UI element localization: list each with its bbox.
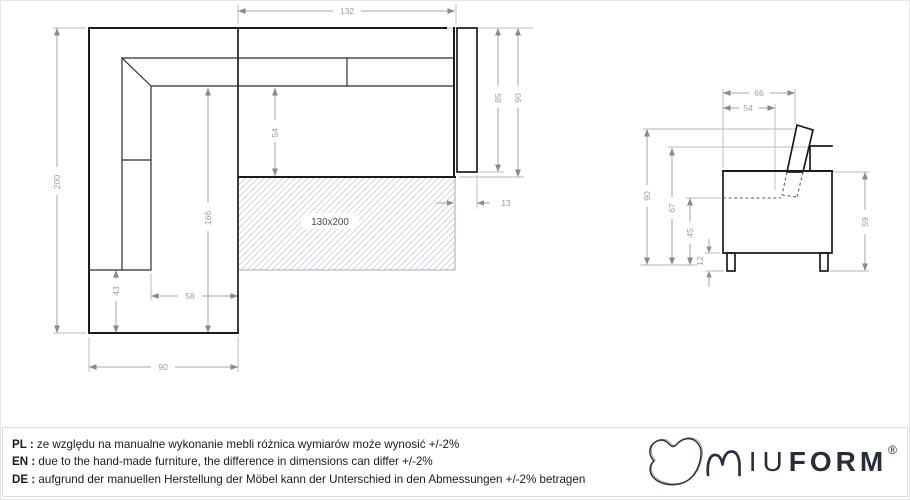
- disclaimer-pl: PL : ze względu na manualne wykonanie me…: [12, 436, 585, 454]
- footer: PL : ze względu na manualne wykonanie me…: [2, 427, 908, 497]
- dim-label-90-bottom: 90: [158, 362, 168, 372]
- dim-label-200: 200: [52, 175, 62, 190]
- sofa-leg-left: [727, 253, 735, 271]
- dim-label-166: 166: [203, 211, 213, 226]
- disclaimer-en-text: due to the hand-made furniture, the diff…: [38, 455, 432, 468]
- registered-mark: ®: [888, 443, 897, 457]
- dim-label-132: 132: [340, 6, 355, 16]
- sofa-leg-right: [820, 253, 828, 271]
- dim-label-54-top: 54: [270, 128, 280, 138]
- bean-icon-sketch-line: [651, 438, 702, 484]
- disclaimer-de-text: aufgrund der manuellen Herstellung der M…: [38, 473, 585, 486]
- dim-label-59: 59: [860, 217, 870, 227]
- brand-logo-mark: [646, 436, 746, 488]
- brand-name-form: FORM: [789, 446, 887, 478]
- headrest-flap: [787, 125, 813, 172]
- spec-sheet-page: 132 200 85 90 13 54 166 43 58 90 130x200: [0, 0, 910, 500]
- mattress-size-label: 130x200: [311, 217, 349, 228]
- dim-label-90-right: 90: [513, 93, 523, 103]
- side-view: 66 54 90 67 45 12 59: [640, 87, 870, 287]
- m-monogram-icon: [707, 452, 739, 476]
- dim-label-67: 67: [667, 203, 677, 213]
- headrest-hidden-lines: [723, 172, 803, 198]
- disclaimer-de-lang: DE :: [12, 473, 35, 486]
- top-view: 132 200 85 90 13 54 166 43 58 90 130x200: [52, 4, 533, 373]
- dim-label-43: 43: [111, 286, 121, 296]
- disclaimer-en-lang: EN :: [12, 455, 35, 468]
- brand-logo: IUFORM®: [646, 436, 897, 488]
- dim-label-58: 58: [185, 291, 195, 301]
- disclaimer-en: EN : due to the hand-made furniture, the…: [12, 453, 585, 471]
- dim-label-66: 66: [754, 88, 764, 98]
- disclaimer-pl-lang: PL :: [12, 438, 34, 451]
- side-view-label-halos: [642, 87, 870, 244]
- dim-label-54-side: 54: [743, 103, 753, 113]
- dim-label-45: 45: [685, 228, 695, 238]
- dim-label-12: 12: [695, 256, 705, 266]
- disclaimer-pl-text: ze względu na manualne wykonanie mebli r…: [37, 438, 459, 451]
- disclaimer-de: DE : aufgrund der manuellen Herstellung …: [12, 471, 585, 489]
- dim-label-90-side: 90: [642, 191, 652, 201]
- brand-name-iu: IU: [749, 446, 789, 478]
- technical-drawing: 132 200 85 90 13 54 166 43 58 90 130x200: [0, 0, 910, 427]
- disclaimer-block: PL : ze względu na manualne wykonanie me…: [3, 436, 585, 489]
- dim-label-13: 13: [501, 198, 511, 208]
- dim-label-85: 85: [493, 93, 503, 103]
- side-view-extension-lines: [640, 89, 869, 271]
